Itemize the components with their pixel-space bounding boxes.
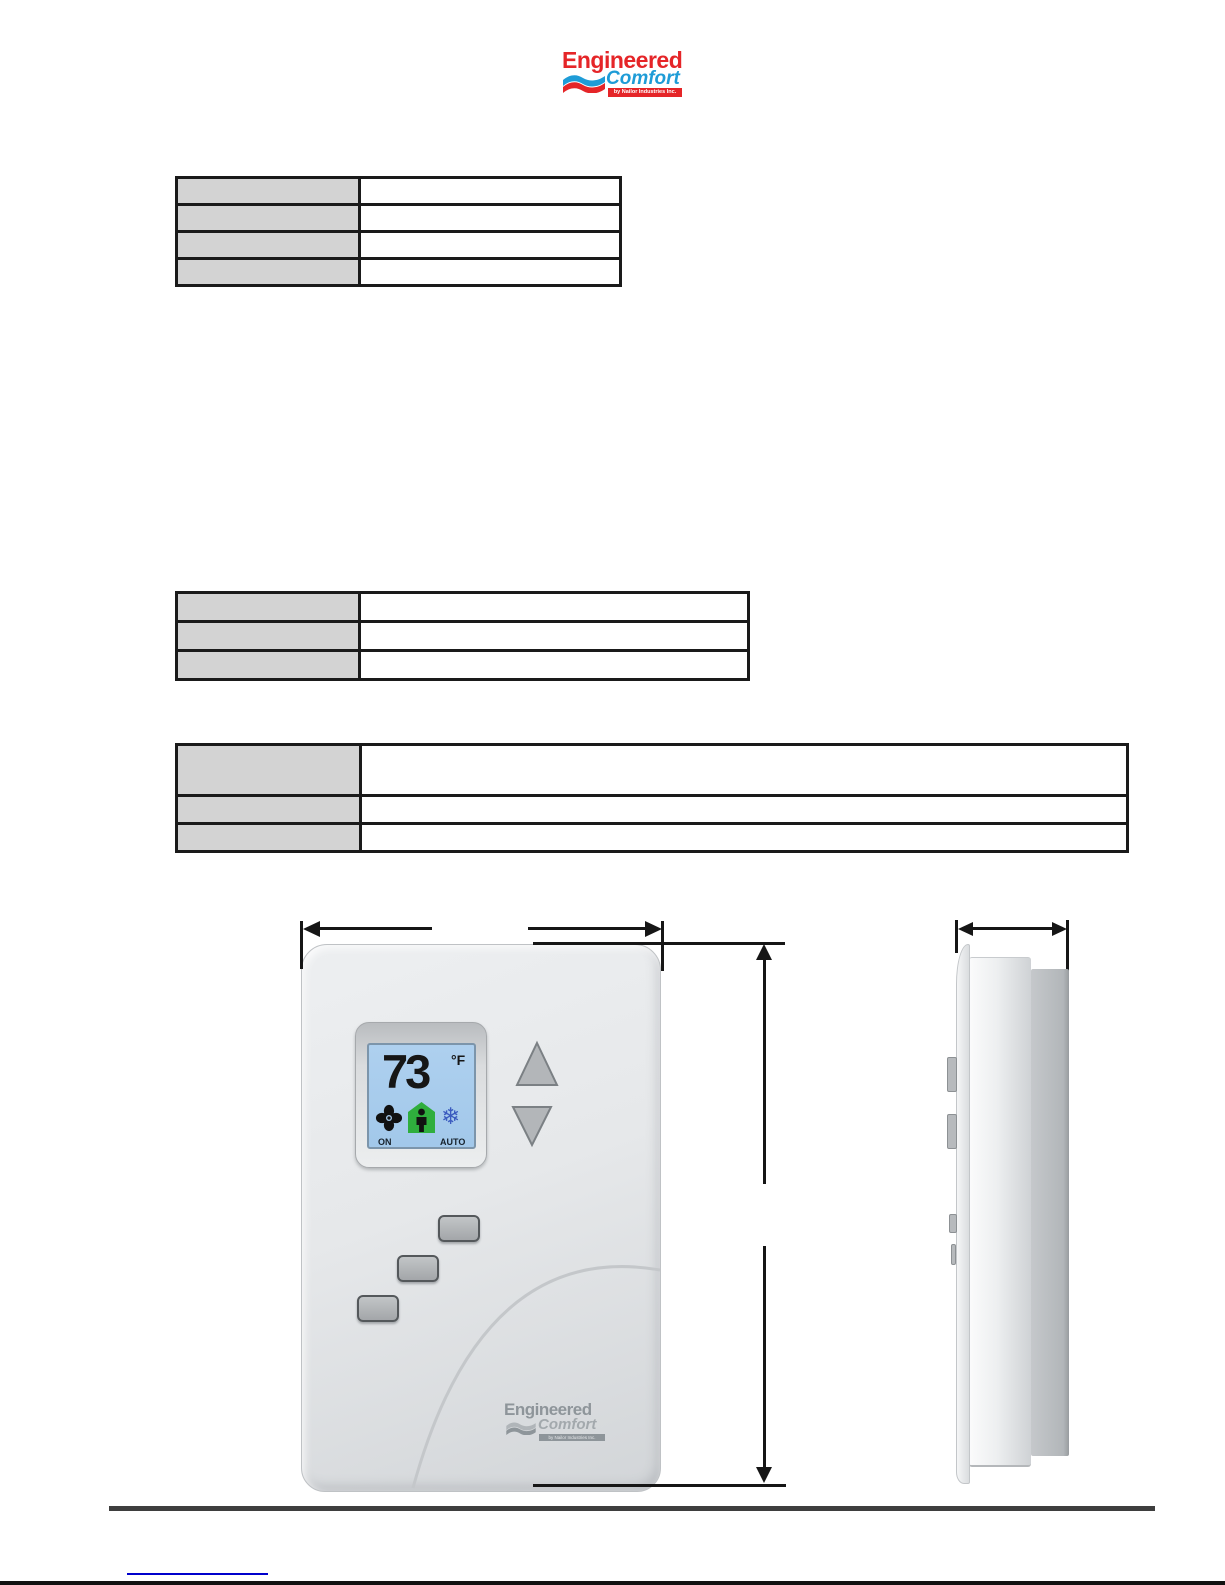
side-view-button-3 bbox=[949, 1214, 957, 1233]
height-dim-arrow-down bbox=[756, 1467, 772, 1483]
spec-table-3 bbox=[175, 743, 1129, 853]
spec-value-cell bbox=[360, 205, 621, 232]
width-dim-arrow-right bbox=[645, 921, 662, 937]
spec-value-cell bbox=[360, 259, 621, 286]
side-view-main-body bbox=[969, 957, 1031, 1467]
fan-icon bbox=[375, 1104, 403, 1132]
side-view-button-4 bbox=[951, 1244, 956, 1265]
spec-label-cell bbox=[177, 232, 360, 259]
spec-table-2 bbox=[175, 591, 750, 681]
brand-name-bottom: Comfort bbox=[606, 68, 680, 90]
device-logo-name-bottom: Comfort bbox=[538, 1416, 596, 1433]
lcd-screen: 73 °F ❄ ON AUTO bbox=[367, 1043, 476, 1149]
spec-label-cell bbox=[177, 824, 361, 852]
device-logo-tagline: by Nailor Industries Inc. bbox=[539, 1434, 605, 1441]
height-dim-ext-bottom bbox=[533, 1484, 786, 1487]
spec-value-cell bbox=[360, 178, 621, 205]
fan-status-label: ON bbox=[378, 1137, 392, 1147]
spec-label-cell bbox=[177, 622, 360, 651]
brand-tagline: by Nailor Industries Inc. bbox=[608, 88, 682, 97]
side-view-button-1 bbox=[947, 1057, 957, 1092]
height-dim-line-upper bbox=[763, 958, 766, 1184]
preset-button-1 bbox=[438, 1215, 480, 1242]
width-dim-line-left bbox=[318, 927, 432, 930]
preset-button-3 bbox=[357, 1295, 399, 1322]
table-row bbox=[177, 824, 1128, 852]
table-row bbox=[177, 178, 621, 205]
height-dim-ext-top bbox=[533, 942, 785, 945]
temperature-value: 73 bbox=[382, 1047, 428, 1096]
depth-dim-line bbox=[971, 927, 1054, 930]
spec-value-cell bbox=[360, 593, 749, 622]
spec-value-cell bbox=[360, 651, 749, 680]
table-row bbox=[177, 745, 1128, 796]
datasheet-page: Engineered Comfort by Nailor Industries … bbox=[0, 0, 1225, 1585]
spec-label-cell bbox=[177, 651, 360, 680]
table-row bbox=[177, 622, 749, 651]
spec-label-cell bbox=[177, 593, 360, 622]
page-bottom-edge bbox=[0, 1581, 1225, 1585]
table-row bbox=[177, 593, 749, 622]
arrow-up-button bbox=[514, 1040, 560, 1088]
spec-label-cell bbox=[177, 745, 361, 796]
brand-logo: Engineered Comfort by Nailor Industries … bbox=[560, 47, 694, 101]
spec-label-cell bbox=[177, 796, 361, 824]
spec-table-1 bbox=[175, 176, 622, 287]
spec-value-cell bbox=[360, 622, 749, 651]
device-logo: Engineered Comfort by Nailor Industries … bbox=[504, 1400, 614, 1450]
arrow-down-button bbox=[510, 1104, 554, 1148]
spec-value-cell bbox=[361, 796, 1128, 824]
side-view-button-2 bbox=[947, 1114, 957, 1149]
brand-wave-icon bbox=[563, 73, 605, 93]
device-logo-wave-icon bbox=[506, 1421, 536, 1435]
side-view-front-edge bbox=[956, 944, 970, 1484]
table-row bbox=[177, 796, 1128, 824]
table-row bbox=[177, 232, 621, 259]
table-row bbox=[177, 651, 749, 680]
side-view-back-plate bbox=[1031, 969, 1069, 1456]
table-row bbox=[177, 205, 621, 232]
spec-value-cell bbox=[360, 232, 621, 259]
height-dim-line-lower bbox=[763, 1246, 766, 1468]
spec-value-cell bbox=[361, 824, 1128, 852]
mode-status-label: AUTO bbox=[440, 1137, 465, 1147]
spec-label-cell bbox=[177, 178, 360, 205]
footer-rule bbox=[109, 1506, 1155, 1511]
width-dim-tick-right bbox=[661, 921, 664, 971]
depth-dim-arrow-right bbox=[1052, 922, 1067, 936]
occupancy-icon bbox=[408, 1102, 435, 1133]
spec-label-cell bbox=[177, 205, 360, 232]
width-dim-line-right bbox=[528, 927, 646, 930]
temperature-unit: °F bbox=[451, 1052, 465, 1068]
spec-value-cell bbox=[361, 745, 1128, 796]
table-row bbox=[177, 259, 621, 286]
preset-button-2 bbox=[397, 1255, 439, 1282]
spec-label-cell bbox=[177, 259, 360, 286]
depth-dim-tick-right bbox=[1066, 920, 1069, 971]
snowflake-icon: ❄ bbox=[441, 1105, 460, 1128]
footer-link[interactable] bbox=[127, 1562, 268, 1575]
